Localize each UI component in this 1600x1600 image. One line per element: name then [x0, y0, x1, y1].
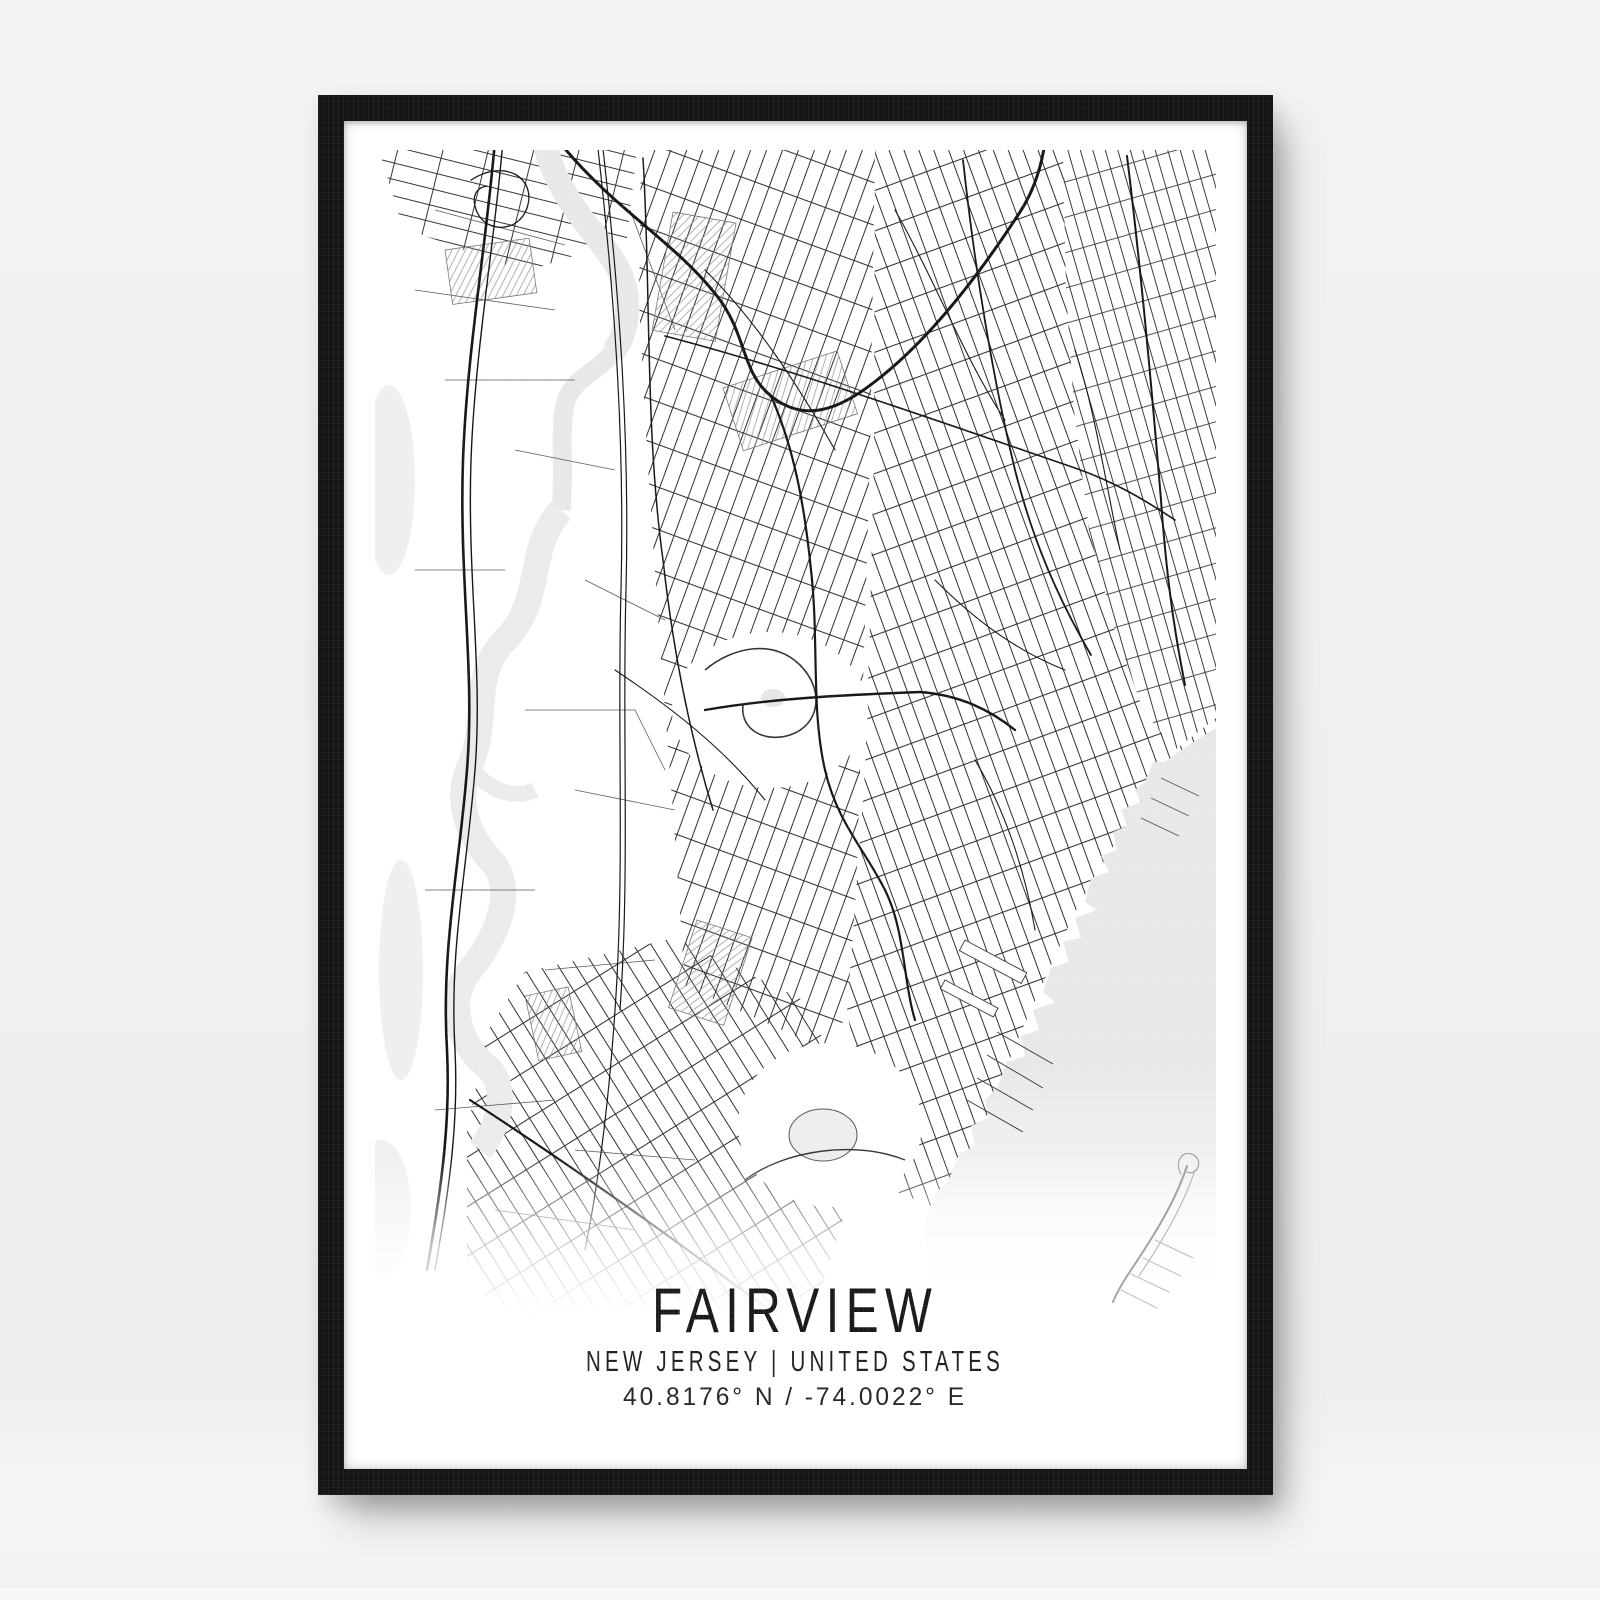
city-map — [375, 150, 1216, 1340]
poster-coordinates: 40.8176° N / -74.0022° E — [623, 1383, 967, 1411]
caption-block: FAIRVIEW NEW JERSEY | UNITED STATES 40.8… — [344, 1261, 1247, 1481]
poster-frame: FAIRVIEW NEW JERSEY | UNITED STATES 40.8… — [318, 95, 1273, 1495]
wall-floor-seam — [0, 1586, 1600, 1600]
poster: FAIRVIEW NEW JERSEY | UNITED STATES 40.8… — [344, 121, 1247, 1469]
city-map-art — [375, 150, 1216, 1340]
poster-subtitle: NEW JERSEY | UNITED STATES — [586, 1346, 1004, 1378]
product-photo-wall: FAIRVIEW NEW JERSEY | UNITED STATES 40.8… — [0, 0, 1600, 1600]
poster-title: FAIRVIEW — [652, 1276, 938, 1346]
